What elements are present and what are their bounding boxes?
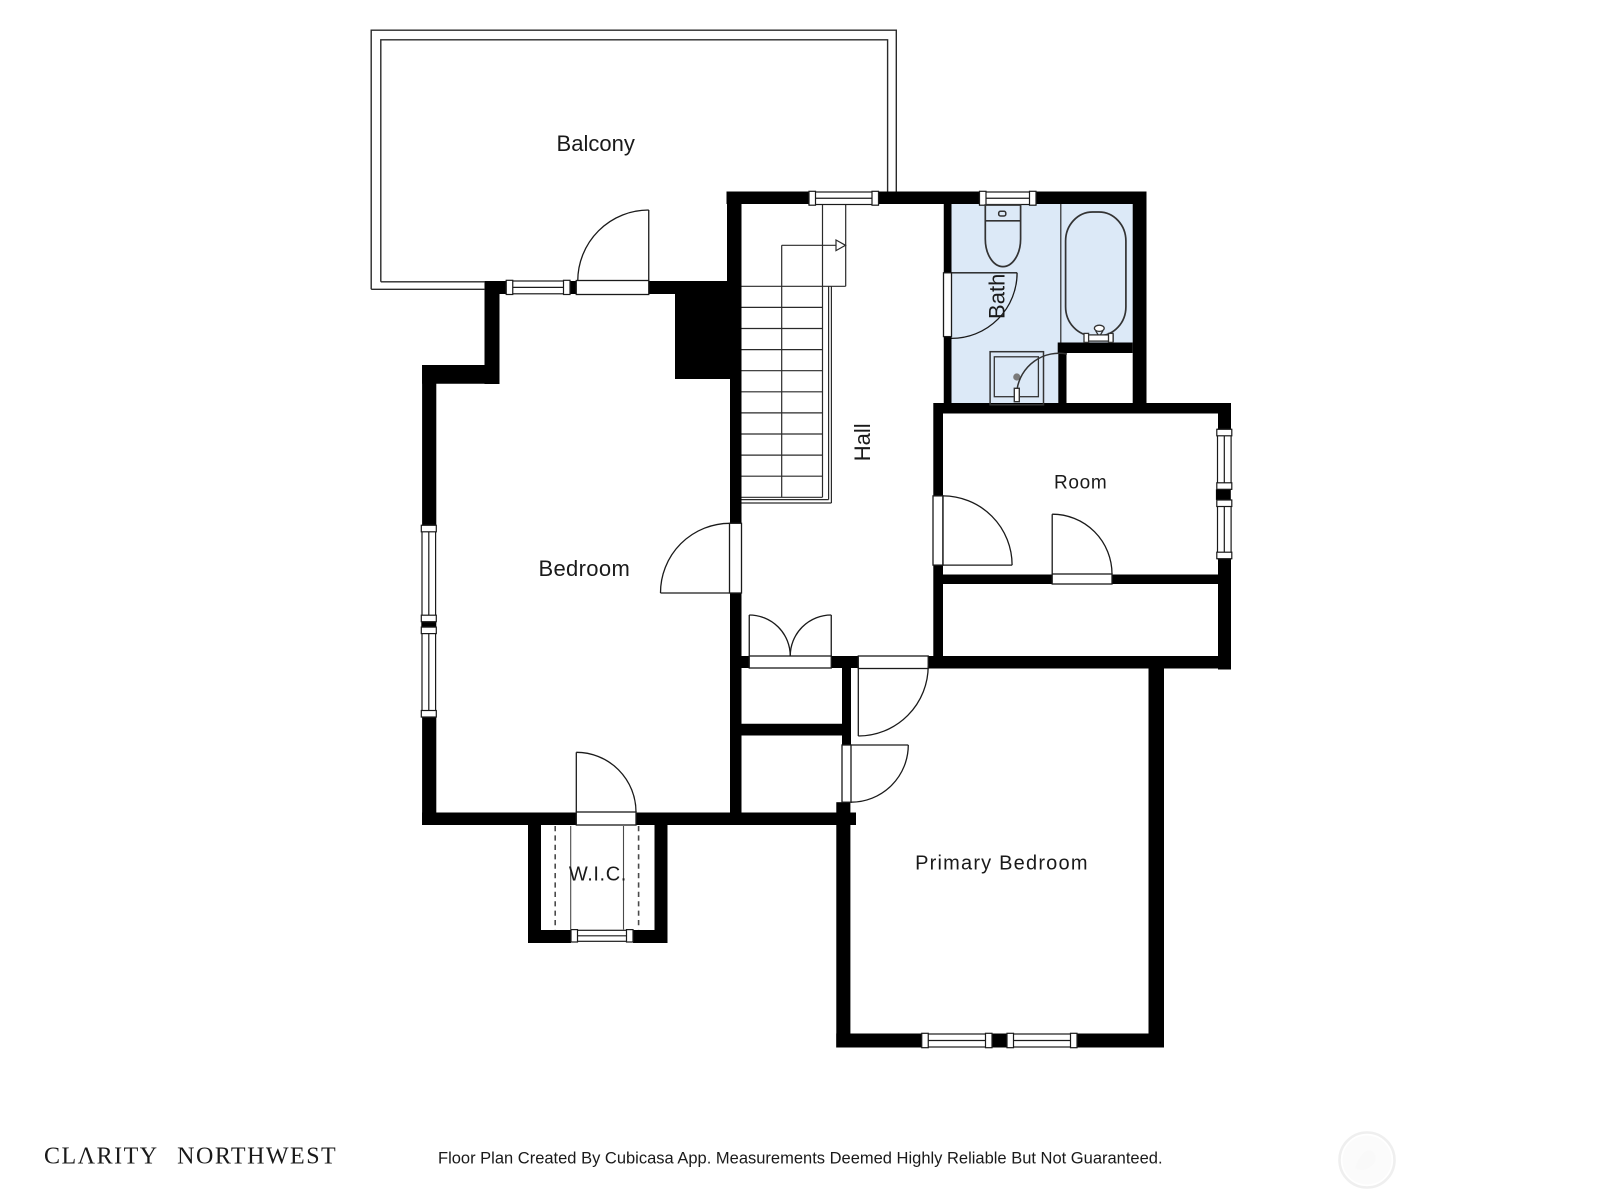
svg-text:Room: Room xyxy=(1054,473,1107,494)
svg-text:Bedroom: Bedroom xyxy=(538,556,630,581)
svg-text:Balcony: Balcony xyxy=(557,131,635,156)
svg-text:Floor Plan Created By Cubicasa: Floor Plan Created By Cubicasa App. Meas… xyxy=(438,1150,1163,1168)
svg-text:Primary Bedroom: Primary Bedroom xyxy=(915,852,1089,874)
svg-text:CLΛRITY NORTHWEST: CLΛRITY NORTHWEST xyxy=(44,1144,337,1170)
svg-text:Bath: Bath xyxy=(985,274,1010,319)
svg-text:W.I.C.: W.I.C. xyxy=(569,864,627,886)
svg-text:Hall: Hall xyxy=(850,423,875,461)
